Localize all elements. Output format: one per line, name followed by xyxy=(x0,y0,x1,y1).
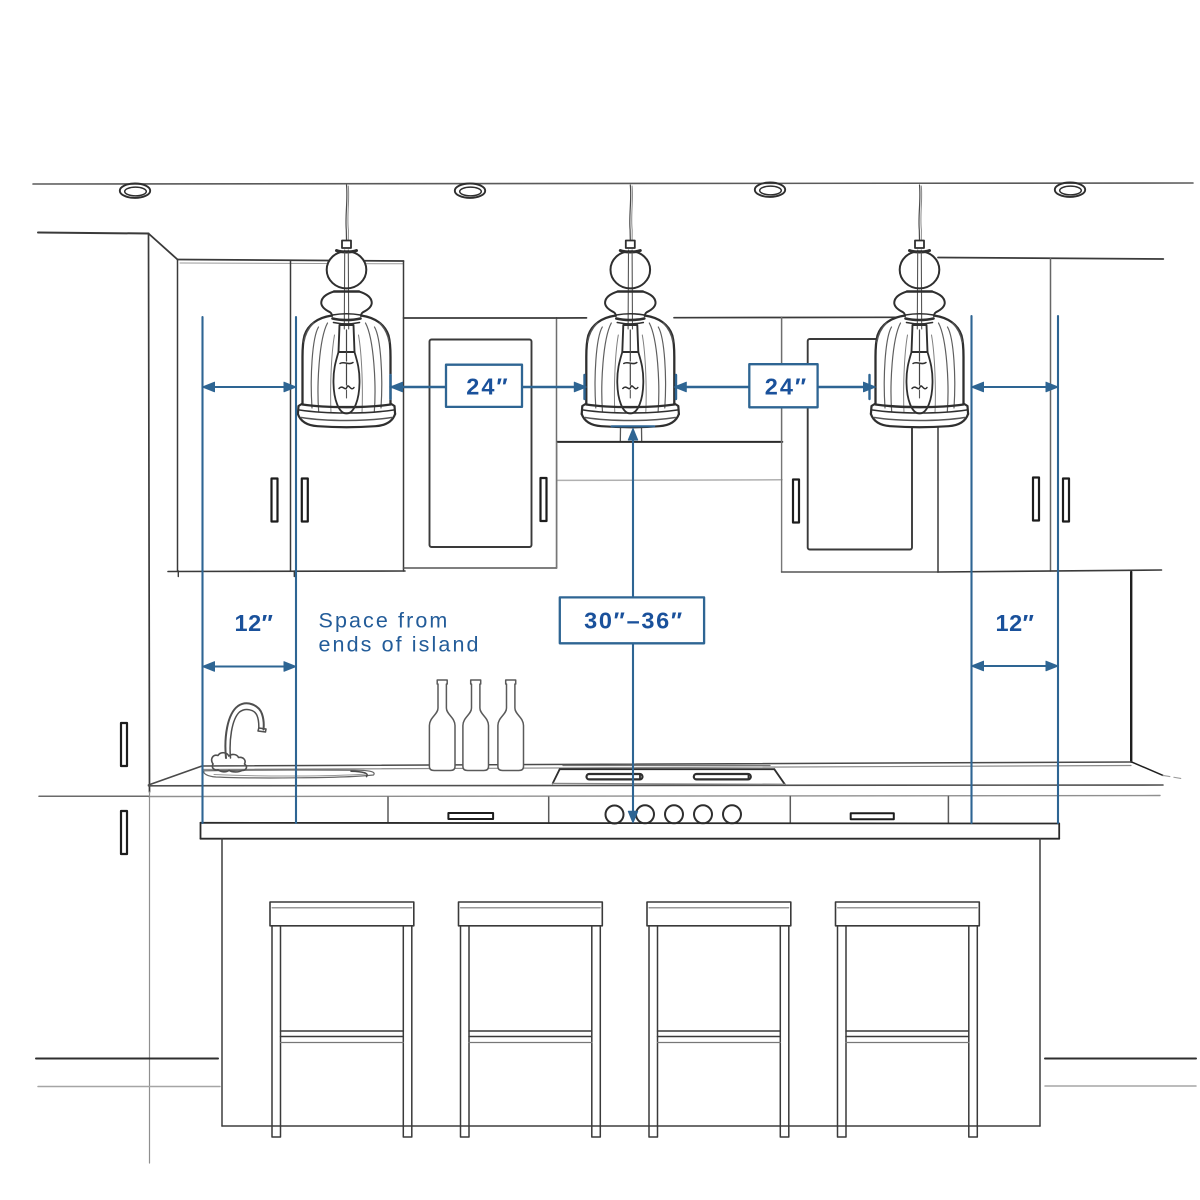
svg-text:24″: 24″ xyxy=(466,374,509,400)
svg-text:12″: 12″ xyxy=(996,610,1035,636)
svg-text:24″: 24″ xyxy=(765,374,808,400)
svg-text:12″: 12″ xyxy=(235,610,274,636)
svg-text:ends of island: ends of island xyxy=(319,633,481,657)
svg-text:Space from: Space from xyxy=(319,609,450,633)
svg-text:30″–36″: 30″–36″ xyxy=(584,608,684,634)
